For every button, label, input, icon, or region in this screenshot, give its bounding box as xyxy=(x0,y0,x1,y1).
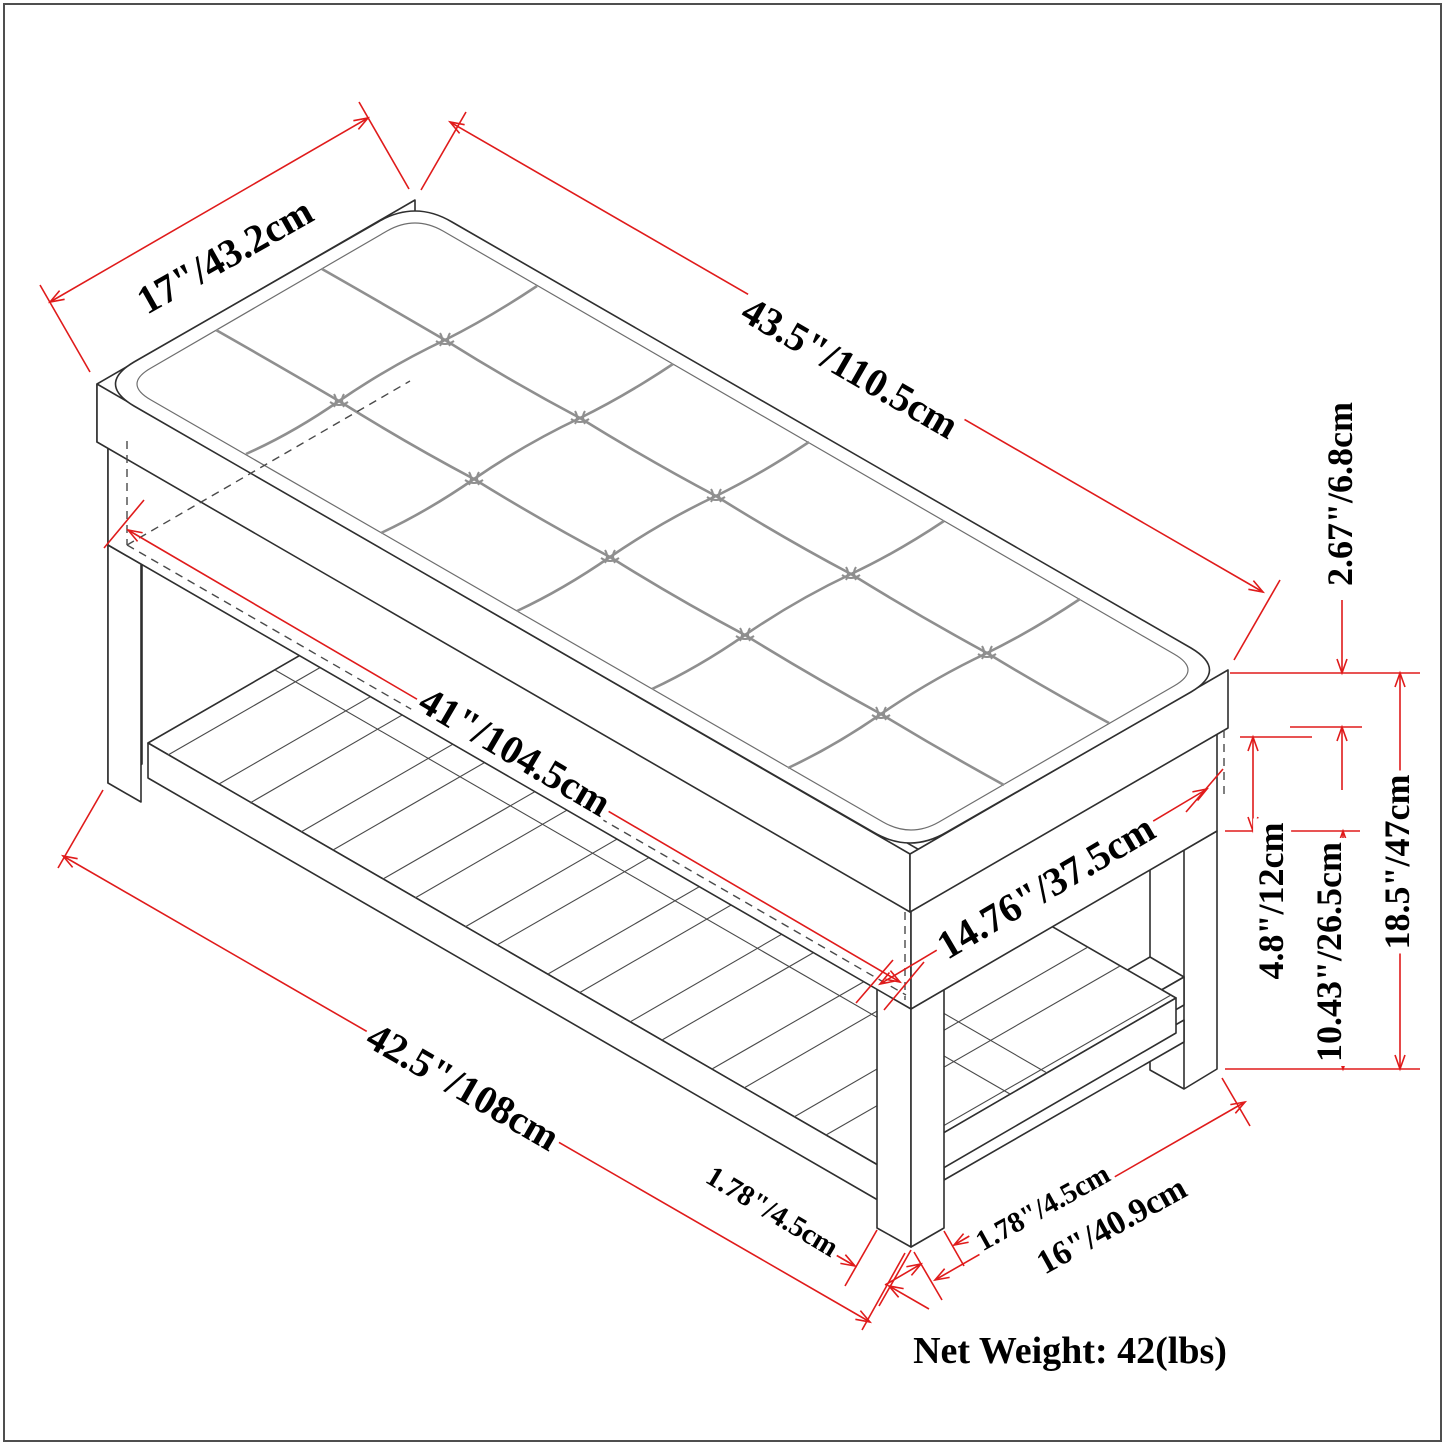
bench-isometric-drawing xyxy=(0,0,1445,1445)
dimension-diagram-page: 17"/43.2cm 43.5"/110.5cm 2.67"/6.8cm 41"… xyxy=(0,0,1445,1445)
dim-frame-height-label: 4.8"/12cm xyxy=(1253,819,1291,984)
dim-clearance-label: 10.43"/26.5cm xyxy=(1311,838,1349,1066)
dim-total-height-label: 18.5"/47cm xyxy=(1379,771,1417,954)
net-weight-label: Net Weight: 42(lbs) xyxy=(909,1332,1231,1372)
bench-structure xyxy=(97,200,1228,1247)
dim-cushion-thickness-label: 2.67"/6.8cm xyxy=(1322,398,1360,590)
front-right-leg xyxy=(877,989,944,1247)
front-left-leg xyxy=(108,526,142,802)
